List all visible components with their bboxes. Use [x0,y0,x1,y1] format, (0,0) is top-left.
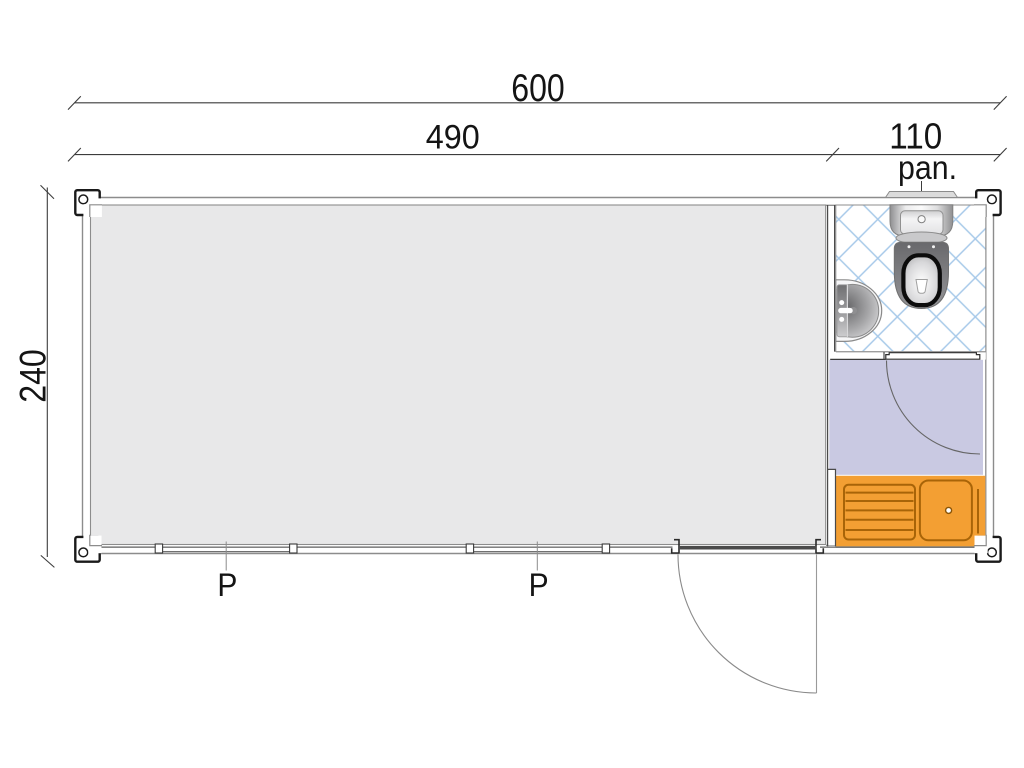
svg-text:490: 490 [426,119,480,157]
svg-text:pan.: pan. [898,149,957,186]
svg-text:600: 600 [511,67,565,110]
svg-text:P: P [529,567,549,603]
svg-text:P: P [217,567,237,603]
svg-text:240: 240 [13,349,54,403]
